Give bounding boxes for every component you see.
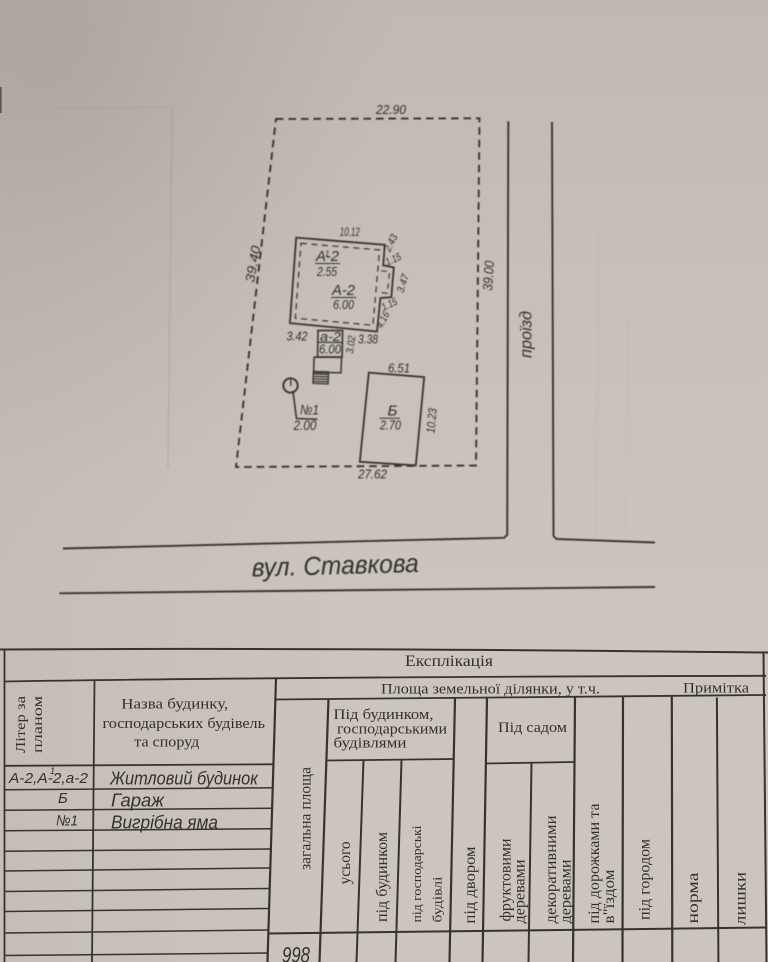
- svg-text:6.00: 6.00: [319, 343, 341, 357]
- svg-text:10.12: 10.12: [340, 225, 360, 239]
- svg-text:Під садом: Під садом: [498, 720, 567, 736]
- svg-text:Примітка: Примітка: [683, 681, 750, 697]
- svg-text:загальна площа: загальна площа: [298, 767, 315, 870]
- svg-text:деревами: деревами: [512, 860, 529, 924]
- svg-text:планом: планом: [30, 695, 45, 753]
- svg-text:998: 998: [282, 943, 311, 962]
- svg-text:під господарські: під господарські: [409, 825, 424, 922]
- svg-text:будівлі: будівлі: [430, 876, 445, 922]
- svg-text:усього: усього: [337, 841, 354, 884]
- svg-text:Вигрібна яма: Вигрібна яма: [111, 813, 218, 833]
- svg-text:3.02: 3.02: [344, 335, 358, 355]
- svg-text:А-2,А-2,а-2: А-2,А-2,а-2: [8, 770, 89, 787]
- svg-text:3.38: 3.38: [358, 333, 378, 347]
- svg-text:6.51: 6.51: [388, 362, 410, 376]
- svg-text:та споруд: та споруд: [134, 734, 199, 750]
- svg-text:будівлями: будівлями: [334, 736, 407, 752]
- svg-text:6.00: 6.00: [333, 297, 355, 312]
- svg-text:господарських будівель: господарських будівель: [103, 716, 266, 732]
- svg-text:Гараж: Гараж: [111, 791, 166, 811]
- svg-text:27.62: 27.62: [357, 467, 388, 482]
- svg-text:під городом: під городом: [637, 839, 654, 920]
- svg-text:3.42: 3.42: [287, 330, 308, 344]
- svg-text:Експлікація: Експлікація: [405, 653, 494, 670]
- svg-text:вул. Ставкова: вул. Ставкова: [251, 548, 419, 583]
- svg-text:норма: норма: [685, 872, 702, 923]
- svg-text:2.00: 2.00: [293, 417, 317, 433]
- svg-text:№1: №1: [56, 813, 78, 830]
- svg-text:39.00: 39.00: [480, 260, 497, 291]
- svg-text:деревами: деревами: [558, 860, 575, 924]
- svg-text:Площа земельної ділянки, у т.ч: Площа земельної ділянки, у т.ч.: [381, 682, 600, 698]
- svg-text:в"їздом: в"їздом: [601, 869, 618, 923]
- svg-text:2.55: 2.55: [316, 264, 337, 279]
- svg-text:10.23: 10.23: [424, 407, 440, 433]
- svg-text:Б: Б: [58, 790, 68, 807]
- svg-text:лишки: лишки: [733, 872, 750, 925]
- svg-text:під двором: під двором: [462, 846, 479, 923]
- svg-text:22.90: 22.90: [375, 102, 407, 117]
- svg-text:Житловий будинок: Житловий будинок: [109, 769, 259, 789]
- svg-text:№1: №1: [300, 402, 319, 418]
- svg-text:проїзд: проїзд: [517, 311, 536, 358]
- svg-text:під будинком: під будинком: [374, 832, 391, 922]
- svg-text:Назва будинку,: Назва будинку,: [121, 697, 228, 713]
- svg-text:Літер за: Літер за: [13, 696, 28, 753]
- svg-text:1: 1: [325, 250, 329, 259]
- svg-text:1: 1: [50, 766, 55, 776]
- svg-text:2.70: 2.70: [379, 418, 401, 433]
